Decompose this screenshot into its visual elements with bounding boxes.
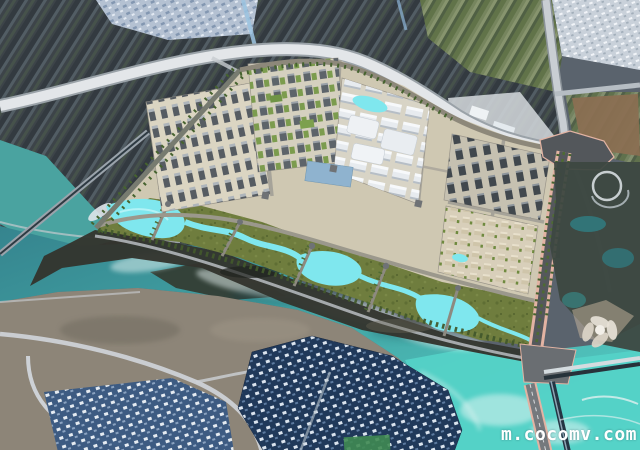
watermark-text: m.cocomv.com	[501, 424, 637, 445]
building-cluster-mid-mixed	[248, 58, 346, 172]
aerial-masterplan-view: m.cocomv.com	[0, 0, 640, 450]
scene-canvas	[0, 0, 640, 450]
green-field	[344, 435, 391, 450]
